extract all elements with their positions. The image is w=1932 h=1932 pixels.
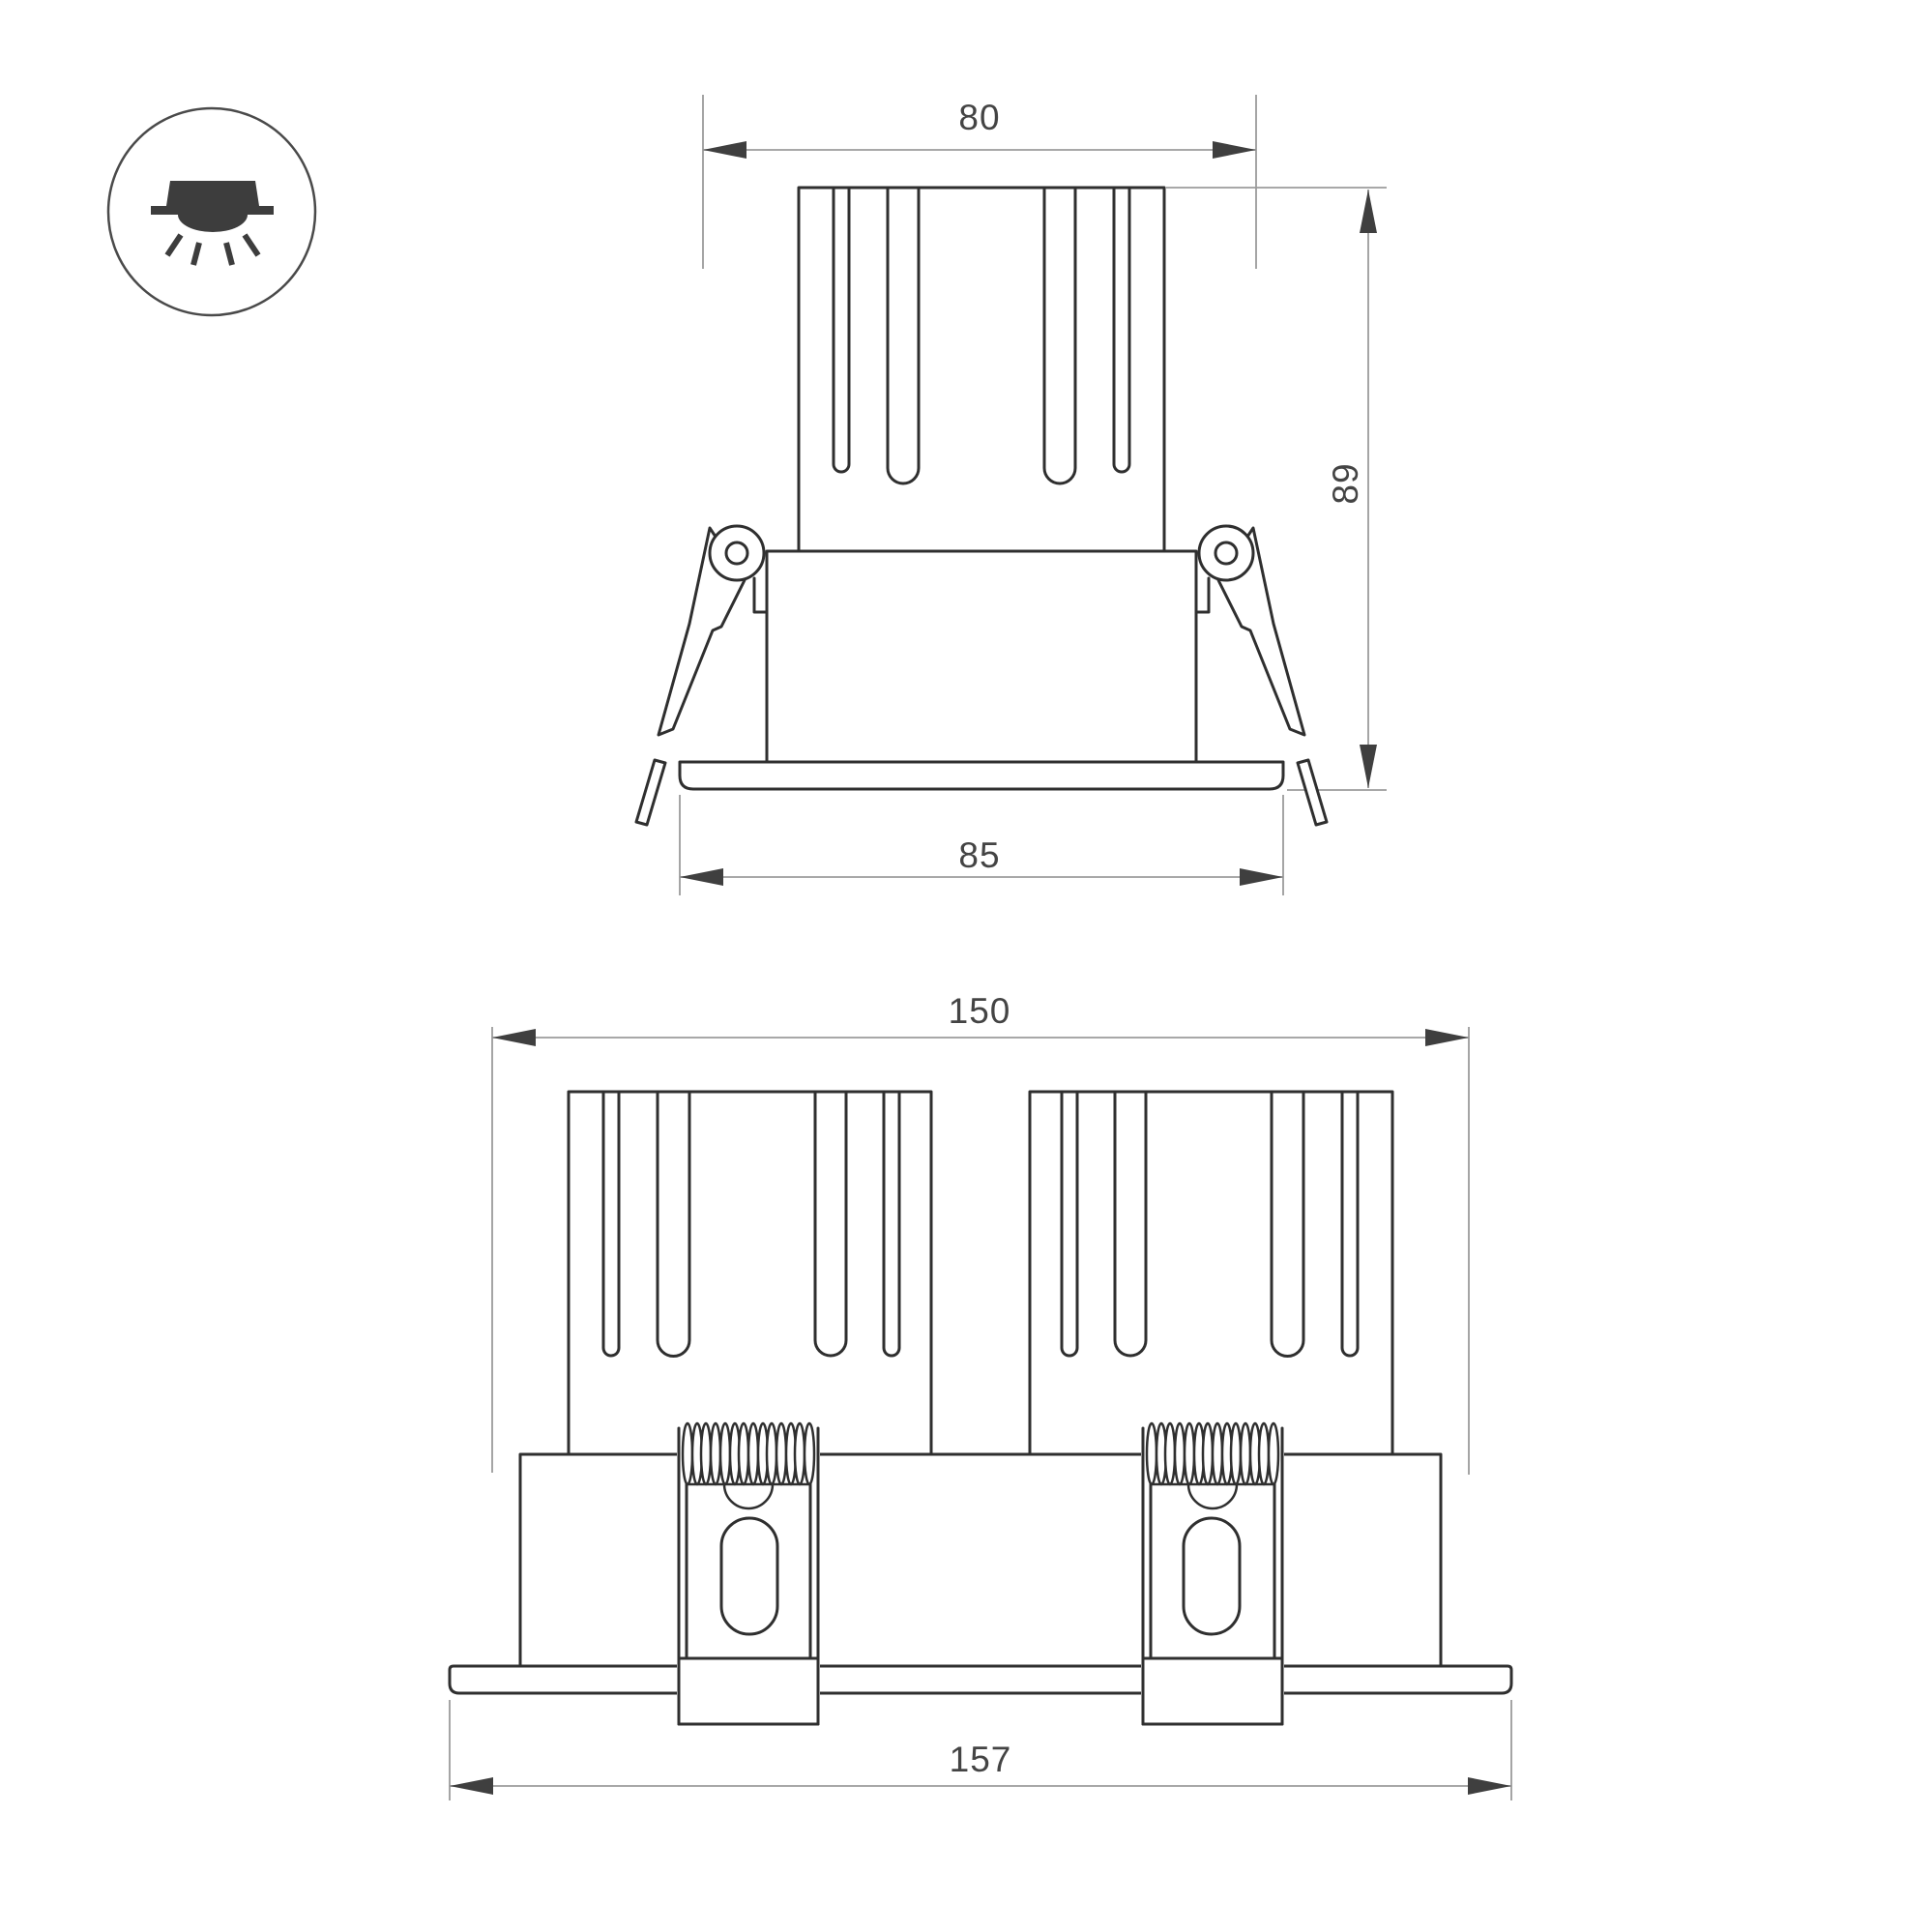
double-front-view: [450, 1092, 1511, 1726]
dimension-label-double-flange-width: 157: [950, 1740, 1012, 1779]
icon-light-rays: [167, 235, 258, 265]
arrowhead: [703, 141, 746, 159]
single-front-view: [636, 188, 1327, 825]
arrowhead: [1468, 1777, 1511, 1795]
spring-coil-loop: [805, 1423, 814, 1484]
dimension-label-flange-width: 85: [958, 835, 1000, 875]
spring-coil-loop: [1147, 1423, 1156, 1484]
spring-coil-loop: [1213, 1423, 1222, 1484]
dimension-label-cutout-width: 80: [958, 98, 1000, 137]
spring-coil-loop: [748, 1423, 758, 1484]
technical-drawing-sheet: 80 89 85: [0, 0, 1932, 1932]
spring-coil-loop: [1259, 1423, 1269, 1484]
clip-slot-hole: [1184, 1518, 1240, 1634]
spring-coil-loop: [795, 1423, 805, 1484]
clip-blade-tip: [636, 760, 665, 825]
heatsink-body: [799, 188, 1164, 551]
mounting-box-body: [520, 1454, 1441, 1666]
icon-ceiling-bar: [151, 206, 274, 215]
dimension-label-overall-width: 150: [949, 991, 1011, 1031]
dimension-label-height: 89: [1326, 462, 1365, 504]
heatsink-body-left: [569, 1092, 931, 1454]
clip-foot: [1143, 1658, 1282, 1724]
light-ray-icon: [226, 243, 232, 265]
clip-blade-tip: [1298, 760, 1327, 825]
icon-light-dome: [178, 215, 248, 232]
clip-slot-hole: [721, 1518, 777, 1634]
spring-coil-loop: [776, 1423, 786, 1484]
spring-coil-loop: [683, 1423, 692, 1484]
light-ray-icon: [167, 235, 181, 255]
clip-foot: [679, 1658, 818, 1724]
spring-coil-loop: [701, 1423, 711, 1484]
spring-coil-loop: [1185, 1423, 1194, 1484]
spring-coil-loop: [767, 1423, 776, 1484]
light-ray-icon: [245, 235, 258, 255]
spring-coil-loop: [711, 1423, 720, 1484]
arrowhead: [680, 868, 723, 886]
luminaire-body: [767, 551, 1196, 762]
arrowhead: [1360, 190, 1377, 233]
spring-coil-loop: [1203, 1423, 1213, 1484]
spring-coil-loop: [1269, 1423, 1278, 1484]
mounting-flange: [450, 1666, 1511, 1693]
spring-clip-cartridge-left: [677, 1420, 820, 1726]
clip-pivot-hole: [1215, 542, 1237, 564]
clip-pivot-hole: [726, 542, 747, 564]
arrowhead: [1213, 141, 1256, 159]
icon-fixture-body: [166, 181, 259, 206]
spring-coil-loop: [1175, 1423, 1185, 1484]
spring-coil-loop: [1231, 1423, 1241, 1484]
light-ray-icon: [193, 243, 199, 265]
arrowhead: [450, 1777, 493, 1795]
clip-bracket: [754, 578, 767, 612]
arrowhead: [1360, 745, 1377, 788]
recessed-downlight-icon: [108, 108, 315, 315]
clip-bracket: [1196, 578, 1209, 612]
spring-coil-loop: [739, 1423, 748, 1484]
icon-fixture-glyph: [151, 181, 274, 232]
spring-coil-loop: [1241, 1423, 1250, 1484]
arrowhead: [1425, 1029, 1469, 1046]
spring-coil-loop: [1165, 1423, 1175, 1484]
arrowhead: [1240, 868, 1283, 886]
heatsink-body-right: [1030, 1092, 1392, 1454]
spring-clip-cartridge-right: [1141, 1420, 1284, 1726]
mounting-flange: [680, 762, 1283, 789]
arrowhead: [492, 1029, 536, 1046]
spring-coil-loop: [720, 1423, 730, 1484]
